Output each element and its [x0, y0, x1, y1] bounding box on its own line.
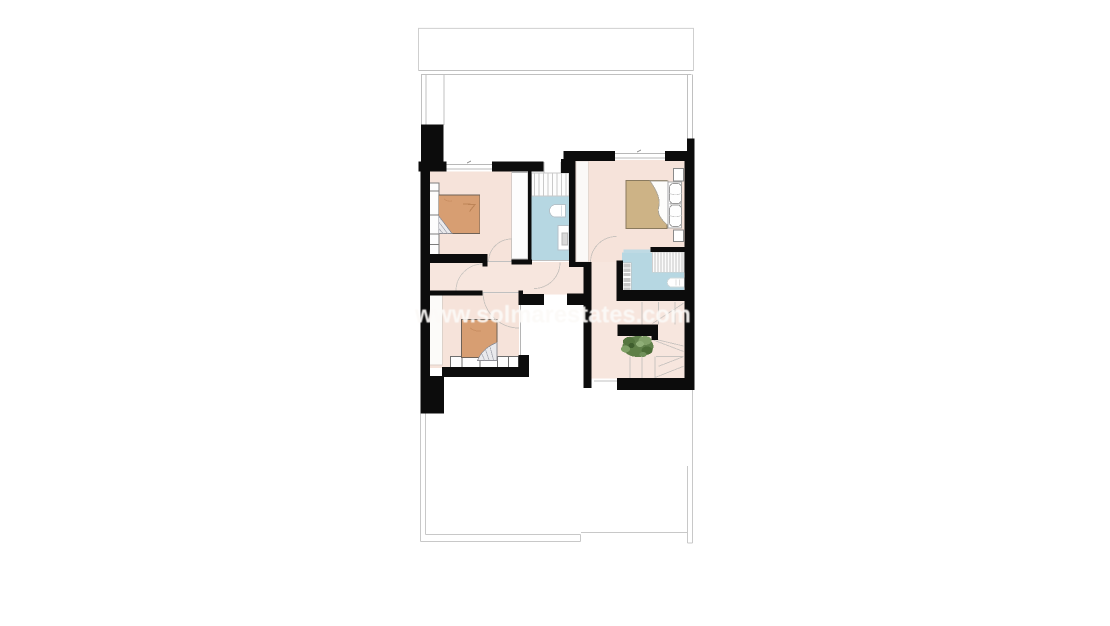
- svg-text:www.solmarestates.com: www.solmarestates.com: [414, 302, 691, 329]
